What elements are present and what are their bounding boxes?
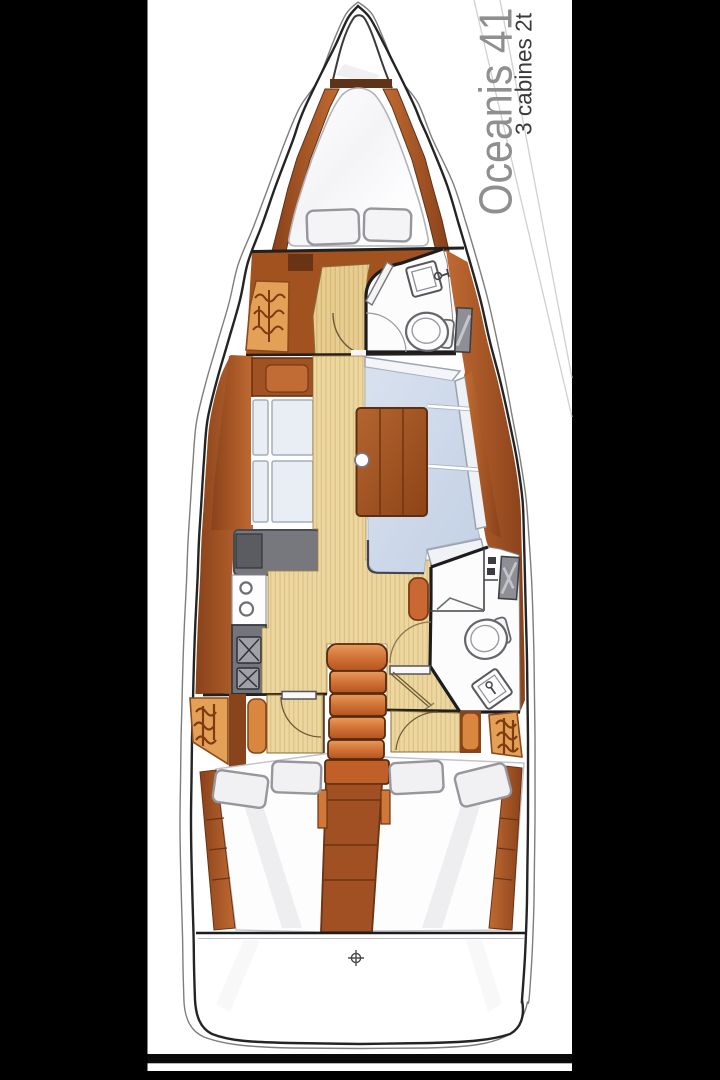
svg-text:3 cabines 2t: 3 cabines 2t <box>511 13 537 135</box>
